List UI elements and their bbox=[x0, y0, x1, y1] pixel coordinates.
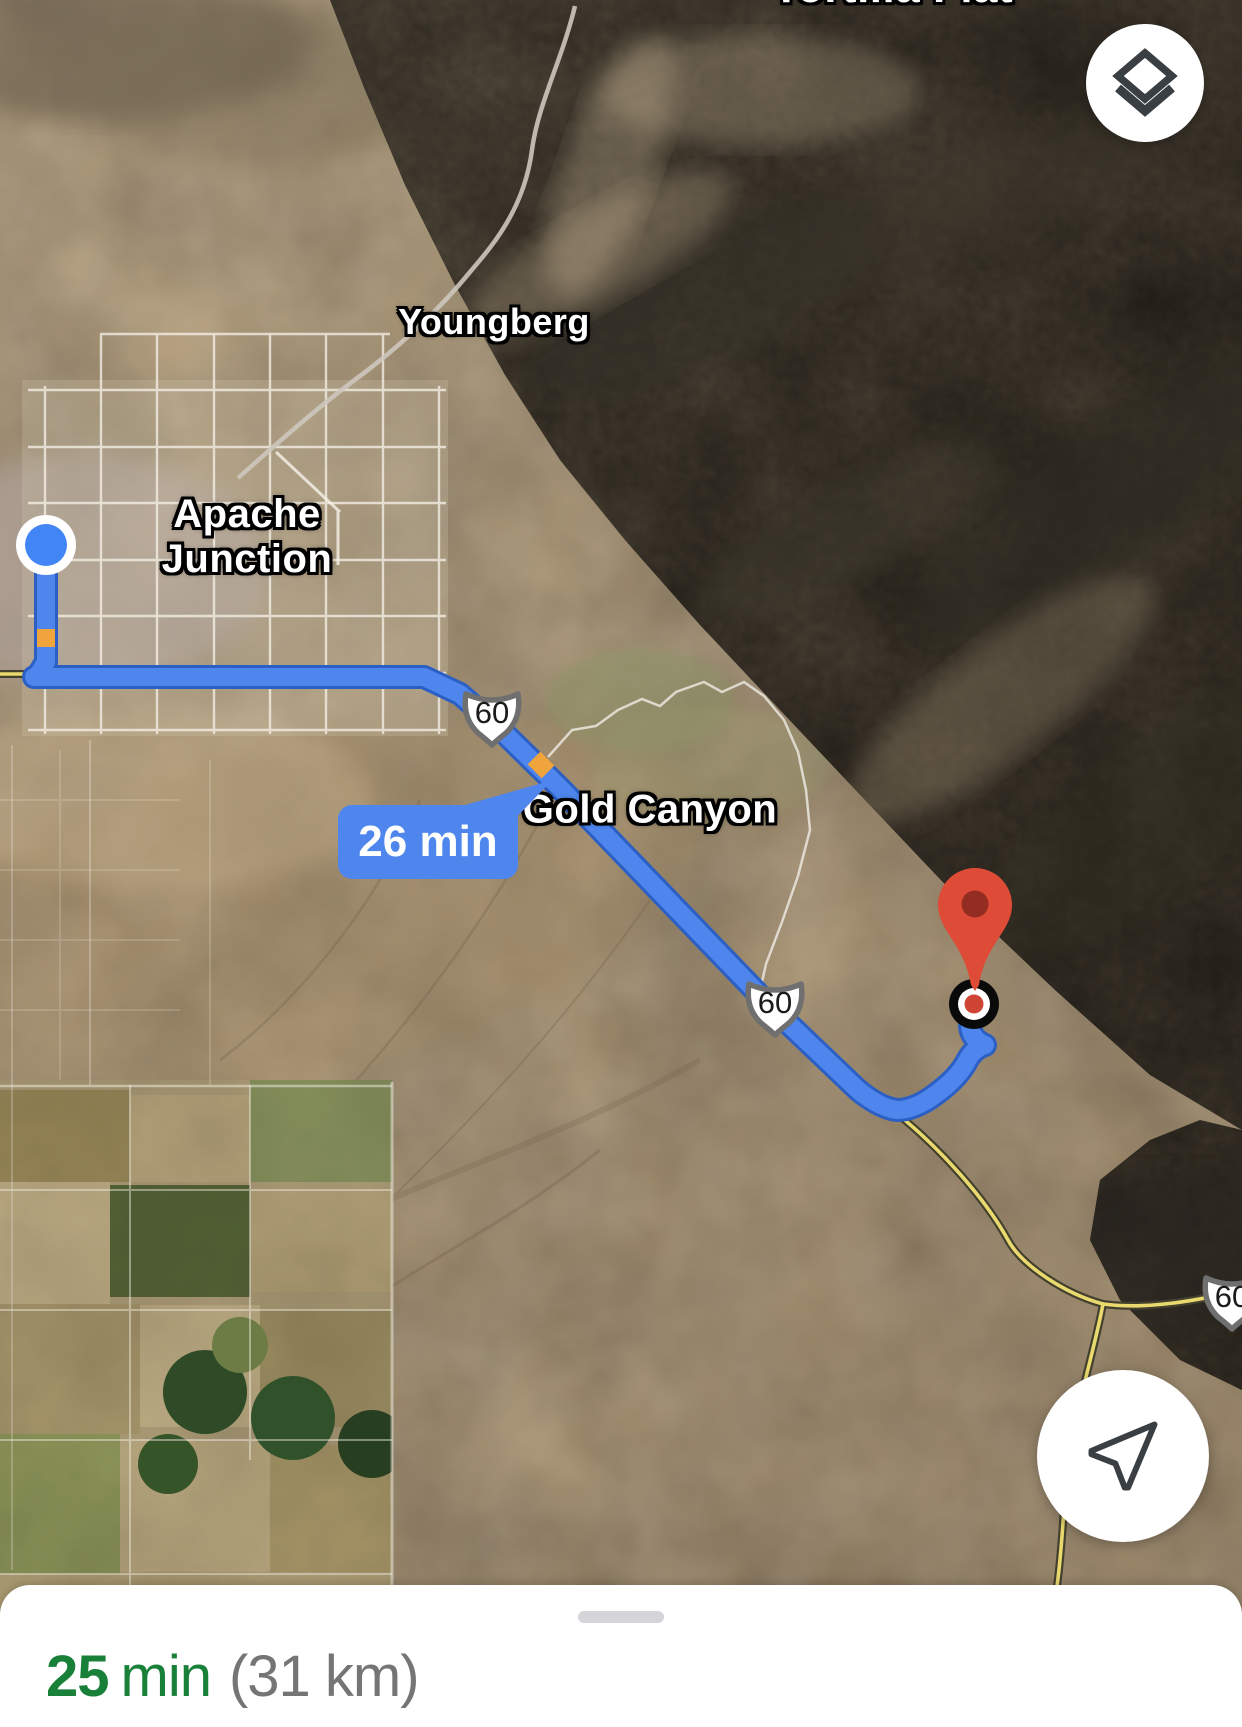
sheet-drag-handle[interactable] bbox=[578, 1611, 664, 1623]
map-layers-button[interactable] bbox=[1086, 24, 1204, 142]
route-duration-callout[interactable]: 26 min bbox=[338, 805, 518, 879]
directions-bottom-sheet[interactable]: 25min(31 km) bbox=[0, 1585, 1242, 1727]
distance-value: (31 km) bbox=[229, 1644, 419, 1709]
duration-value: 25 bbox=[46, 1644, 109, 1709]
route-summary: 25min(31 km) bbox=[46, 1643, 419, 1710]
duration-unit: min bbox=[121, 1644, 211, 1709]
svg-text:60: 60 bbox=[475, 695, 509, 730]
origin-marker[interactable] bbox=[16, 515, 76, 575]
navigation-arrow-icon bbox=[1081, 1414, 1165, 1498]
locate-button[interactable] bbox=[1037, 1370, 1209, 1542]
traffic-segment bbox=[534, 758, 548, 772]
map-canvas[interactable]: 60 60 60 Tortilla Flat Youngberg Apache … bbox=[0, 0, 1242, 1727]
svg-text:60: 60 bbox=[758, 985, 792, 1020]
layers-icon bbox=[1110, 48, 1180, 118]
svg-text:60: 60 bbox=[1215, 1279, 1242, 1314]
route-duration-label: 26 min bbox=[358, 817, 497, 867]
